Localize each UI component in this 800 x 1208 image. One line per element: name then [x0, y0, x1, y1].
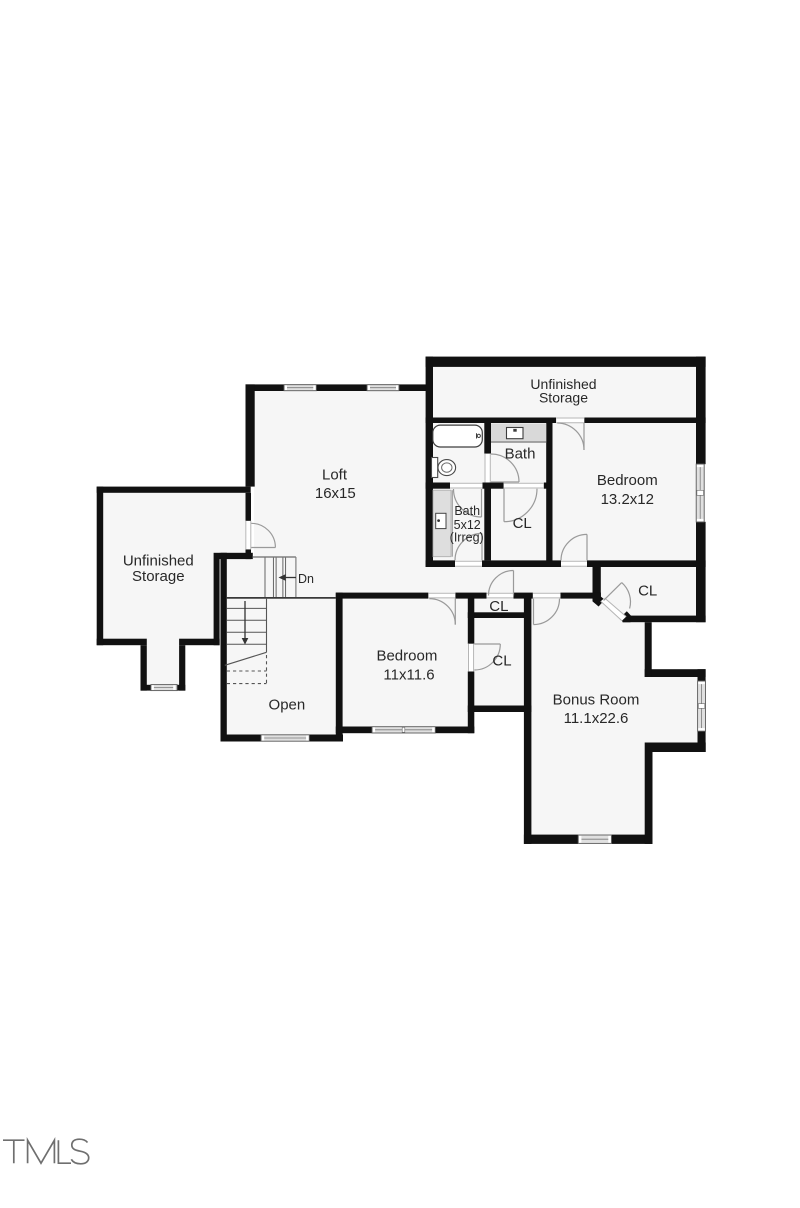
svg-text:CL: CL [489, 598, 508, 615]
svg-text:Loft: Loft [322, 466, 348, 483]
svg-text:16x15: 16x15 [315, 485, 356, 502]
svg-text:Open: Open [269, 697, 306, 714]
svg-text:CL: CL [513, 515, 532, 532]
svg-text:11x11.6: 11x11.6 [383, 666, 434, 683]
svg-text:Storage: Storage [539, 390, 588, 406]
svg-text:Unfinished: Unfinished [123, 552, 194, 569]
svg-text:11.1x22.6: 11.1x22.6 [564, 710, 629, 727]
svg-text:Dn: Dn [298, 572, 314, 586]
svg-text:Bedroom: Bedroom [376, 648, 437, 665]
svg-text:Storage: Storage [132, 568, 185, 585]
svg-text:Bedroom: Bedroom [597, 472, 658, 489]
svg-text:Bonus Room: Bonus Room [553, 691, 640, 708]
svg-text:13.2x12: 13.2x12 [601, 491, 654, 508]
svg-text:(Irreg): (Irreg) [450, 530, 484, 544]
svg-text:CL: CL [492, 653, 511, 670]
svg-text:Bath: Bath [454, 504, 480, 518]
svg-text:Bath: Bath [505, 445, 536, 462]
svg-text:CL: CL [638, 582, 657, 599]
